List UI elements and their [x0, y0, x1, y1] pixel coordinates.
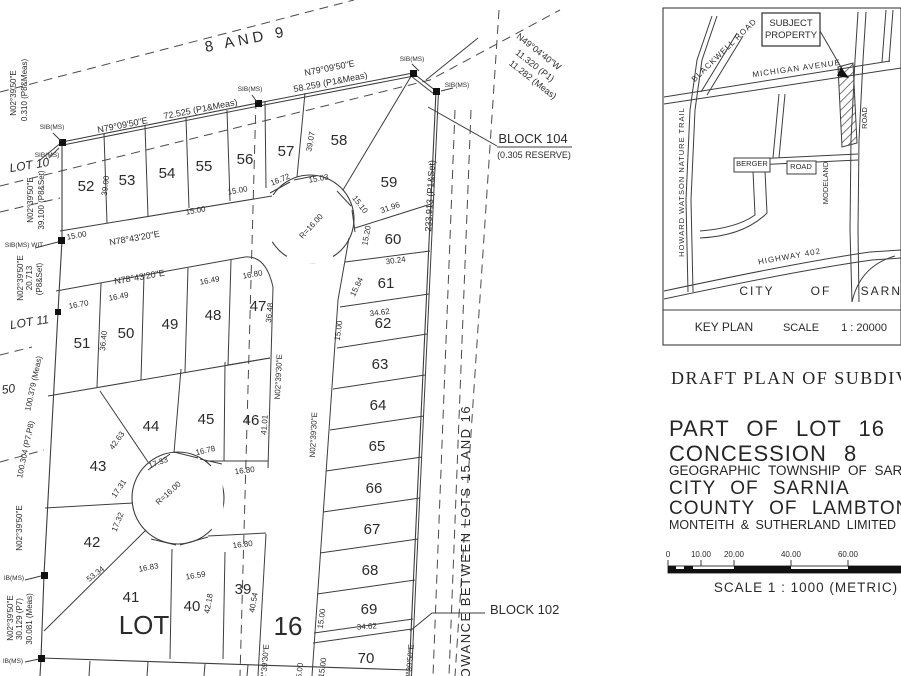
monument-label: SIB(MS) WIT — [5, 242, 43, 249]
scale-tick-label: 20.00 — [724, 550, 745, 559]
plan-label: 17.33 — [147, 455, 169, 470]
subject-property-label: SUBJECT — [769, 18, 812, 29]
plan-label: N02°39'50"E — [9, 70, 18, 115]
lot-16-label-number: 16 — [274, 611, 303, 641]
scale-tick-label: 0 — [666, 550, 671, 559]
scale-tick-label: 40.00 — [781, 550, 802, 559]
plan-label: 15.03 — [308, 172, 330, 184]
scale-bar — [668, 560, 901, 573]
plan-drawing: 8 AND 9N02°39'50"E0.310 (P8&Meas)SIB(MS)… — [0, 0, 901, 676]
plan-label: 15.00 — [317, 657, 329, 676]
plan-label: N02°39'30"E — [273, 354, 284, 400]
road-label: ROAD — [860, 107, 869, 129]
monument-label: SIB(MS) — [445, 82, 470, 89]
key-plan-scale: 1 : 20000 — [841, 322, 887, 334]
lot-number: 49 — [162, 316, 179, 333]
key-plan-caption: KEY PLAN — [695, 320, 753, 334]
road-allowance-15-16-label: LOWANCE BETWEEN LOTS 15 AND 16 — [458, 405, 473, 676]
monument-label: SIB(MS) — [40, 124, 65, 131]
plan-label: 41.01 — [259, 414, 269, 435]
lot-number: 52 — [78, 178, 95, 195]
plan-label: 42.18 — [202, 592, 214, 614]
road-label: BERGER — [736, 159, 768, 168]
lot-number: 51 — [74, 335, 91, 352]
plan-label: 16.80 — [234, 465, 256, 476]
plan-label: 15.00 — [294, 662, 305, 676]
plan-label: N02°39'50"E — [6, 595, 15, 640]
plan-label: 53.34 — [85, 564, 107, 584]
lot-number: 65 — [369, 438, 386, 455]
plan-label: 100.379 (Meas) — [23, 355, 44, 412]
lot-number: 41 — [123, 589, 140, 606]
lot-number: 61 — [378, 275, 395, 292]
lot-number: 59 — [381, 174, 398, 191]
block-104-label: BLOCK 104 — [498, 131, 567, 146]
title-line: GEOGRAPHIC TOWNSHIP OF SARNIA — [669, 463, 901, 478]
scale-caption: SCALE 1 : 1000 (METRIC) — [714, 580, 898, 595]
lot-number: 47 — [250, 298, 267, 315]
plan-label: 34.62 — [357, 621, 378, 631]
lot-number: 40 — [184, 598, 201, 615]
lot-number: 45 — [198, 411, 215, 428]
lot-number: 42 — [84, 534, 101, 551]
plan-label: 16.78 — [195, 444, 217, 457]
monument-label: IB(MS) — [3, 658, 23, 665]
plan-label: 17.31 — [110, 477, 129, 499]
draft-plan-of-subdivision-sheet: 8 AND 9N02°39'50"E0.310 (P8&Meas)SIB(MS)… — [0, 0, 901, 676]
plan-label: 16.80 — [232, 539, 254, 550]
scale-tick-label: 60.00 — [838, 550, 859, 559]
plan-label: N02°39'50"E — [26, 177, 35, 222]
plan-label: 16.72 — [269, 172, 291, 188]
plan-label: 39.07 — [304, 130, 316, 152]
plan-label: 15.00 — [333, 320, 345, 342]
lot-16-label-word: LOT — [119, 610, 170, 640]
road-label: MODELAND — [821, 161, 830, 204]
allowance-8-9-label: 8 AND 9 — [203, 23, 289, 56]
key-plan-scale: SCALE — [783, 322, 819, 334]
plan-label: 15.00 — [227, 184, 249, 196]
city-label: OF — [811, 284, 832, 298]
monument-label: SIB(MS) — [238, 86, 263, 93]
plan-label: 36.40 — [98, 330, 109, 351]
block-102-label: BLOCK 102 — [490, 602, 559, 617]
road-label: HOWARD WATSON NATURE TRAIL — [677, 107, 686, 257]
plan-label: 30.24 — [385, 255, 407, 267]
plan-label: 20.713 — [25, 265, 34, 290]
plan-label: (0.305 RESERVE) — [497, 150, 571, 160]
city-label: SARNIA — [861, 284, 901, 298]
street-lines — [56, 196, 349, 676]
plan-label: N79°09'50"E — [96, 115, 148, 135]
plan-label: R=16.00 — [154, 479, 183, 506]
sheet-title: DRAFT PLAN OF SUBDIVISION — [671, 368, 901, 389]
lot-number: 70 — [358, 650, 375, 667]
scale-tick-label: 10.00 — [691, 550, 712, 559]
plan-label: 0.310 (P8&Meas) — [20, 59, 29, 122]
plan-label: N02°39'50"E — [16, 255, 25, 300]
plan-label: 31.96 — [379, 200, 401, 215]
road-label: ROAD — [790, 162, 812, 171]
plan-label: 39.100 (P8&Set) — [37, 170, 46, 229]
plan-label: 15.00 — [66, 229, 88, 241]
lot-number: 64 — [370, 397, 387, 414]
city-label: CITY — [739, 284, 774, 298]
plan-label: 16.49 — [108, 290, 130, 302]
lot-number: 69 — [361, 601, 378, 618]
lot-number: 63 — [372, 356, 389, 373]
plan-label: N02°39'30"E — [308, 412, 319, 458]
lot-number: 54 — [159, 165, 176, 182]
lot-number: 60 — [385, 231, 402, 248]
lot-number: 66 — [366, 480, 383, 497]
lot-number: 39 — [235, 581, 252, 598]
lot-number: 53 — [119, 172, 136, 189]
plan-label: 16.70 — [68, 298, 90, 310]
title-line: PART OF LOT 16 — [669, 416, 885, 442]
plan-label: 16.83 — [138, 561, 160, 574]
lot-number: 55 — [196, 158, 213, 175]
plan-label: 15.84 — [348, 275, 365, 297]
lot-number: 62 — [375, 315, 392, 332]
plan-label: 30.129 (P7) — [15, 598, 24, 640]
lot-number: 46 — [243, 412, 260, 429]
lot-11-label: LOT 11 — [9, 312, 50, 332]
plan-label: 39.00 — [100, 175, 111, 197]
plan-label: N02°39'50"E — [403, 644, 416, 676]
lot-number: 43 — [90, 458, 107, 475]
plan-label: 100.304 (P7,P8) — [15, 420, 36, 479]
plan-labels: 8 AND 9N02°39'50"E0.310 (P8&Meas)SIB(MS)… — [1, 23, 571, 676]
plan-label: (P8&Set) — [35, 262, 44, 295]
plan-label: 15.00 — [185, 204, 207, 216]
lot-number: 67 — [364, 521, 381, 538]
lot-number: 57 — [278, 143, 295, 160]
lot-number: 44 — [143, 418, 160, 435]
lot-number: 56 — [237, 151, 254, 168]
plan-label: N78°43'20"E — [108, 229, 160, 248]
plan-label: 233.913 (P1&Set) — [423, 160, 437, 232]
lot-number: 48 — [205, 307, 222, 324]
lot-50-label: 50 — [1, 381, 17, 397]
plan-label: N78°43'20"E — [113, 268, 165, 287]
plan-label: 17.32 — [110, 511, 126, 533]
monument-label: SIB(MS) — [400, 56, 425, 63]
plan-label: 16.80 — [242, 268, 264, 280]
plan-label: N02°39'50"E — [15, 505, 24, 550]
lot-number: 68 — [362, 562, 379, 579]
plan-label: 42.63 — [107, 429, 126, 451]
plan-label: 16.59 — [185, 569, 207, 581]
title-line: CITY OF SARNIA — [669, 478, 850, 500]
lot-number: 58 — [331, 132, 348, 149]
road-label: HIGHWAY 402 — [757, 247, 821, 267]
monument-label: IB(MS) — [4, 575, 24, 582]
lot-number: 50 — [118, 325, 135, 342]
title-line: COUNTY OF LAMBTON — [669, 498, 901, 520]
plan-label: 16.49 — [199, 274, 221, 286]
plan-label: 30.081 (Meas) — [25, 593, 34, 645]
plan-label: 36.48 — [264, 302, 275, 323]
title-line: MONTEITH & SUTHERLAND LIMITED — [669, 518, 896, 532]
plan-label: 15.00 — [316, 608, 328, 630]
subject-property-label: PROPERTY — [765, 30, 818, 41]
plan-label: 15.20 — [360, 224, 372, 246]
